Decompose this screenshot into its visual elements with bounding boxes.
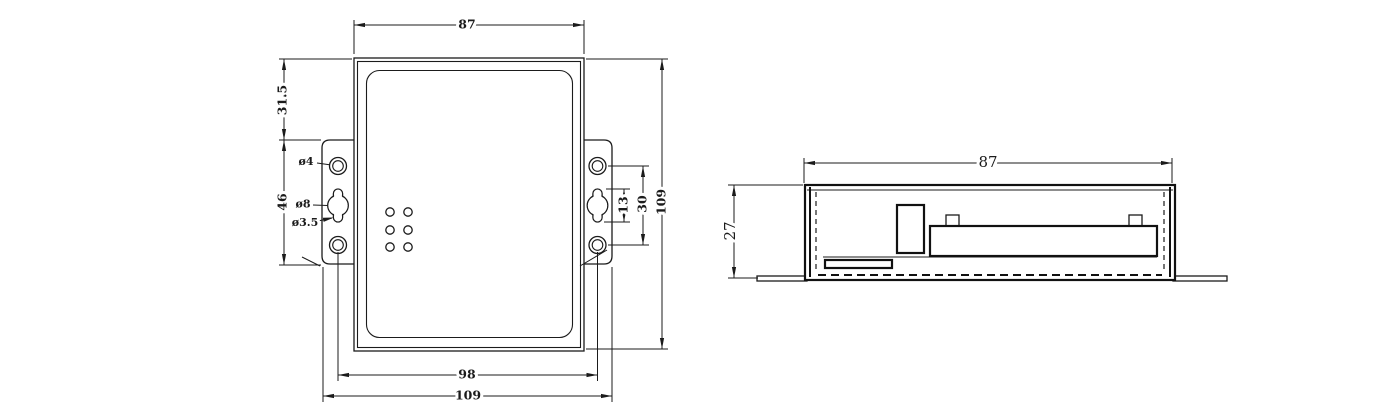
dim-label-hole-span: 98 (458, 367, 476, 382)
callout-label-small-hole: ø4 (299, 155, 314, 168)
dim-label-overall-width: 109 (455, 388, 481, 403)
dim-label-hole-pitch: 30 (635, 195, 650, 213)
bottom-component (825, 260, 892, 268)
dim-side-body-width: 87 (804, 153, 1172, 183)
technical-drawing: 87 31.5 46 ø4 ø8 ø3.5 (0, 0, 1400, 420)
front-view: 87 31.5 46 ø4 ø8 ø3.5 (275, 17, 669, 403)
dim-label-slot-length: 13 (616, 196, 631, 213)
dim-label-ear-height: 46 (275, 193, 290, 211)
flange-right (1173, 276, 1227, 281)
dim-label-side-body-height: 27 (721, 221, 739, 240)
callout-label-keyhole: ø8 (296, 198, 311, 211)
dim-side-body-height: 27 (721, 185, 803, 278)
vertical-component (897, 205, 924, 253)
dim-label-side-body-width: 87 (978, 153, 997, 171)
dim-label-ear-top-offset: 31.5 (275, 85, 290, 115)
dim-front-body-width: 87 (354, 17, 584, 55)
enclosure-body (354, 58, 584, 351)
callout-label-slot: ø3.5 (292, 216, 318, 229)
dim-label-front-body-width: 87 (458, 17, 475, 32)
side-view: 87 27 (721, 153, 1227, 281)
flange-left (757, 276, 807, 281)
dim-label-overall-height: 109 (654, 189, 669, 215)
terminal-block (930, 226, 1157, 256)
drawing-svg: 87 31.5 46 ø4 ø8 ø3.5 (0, 0, 1400, 420)
